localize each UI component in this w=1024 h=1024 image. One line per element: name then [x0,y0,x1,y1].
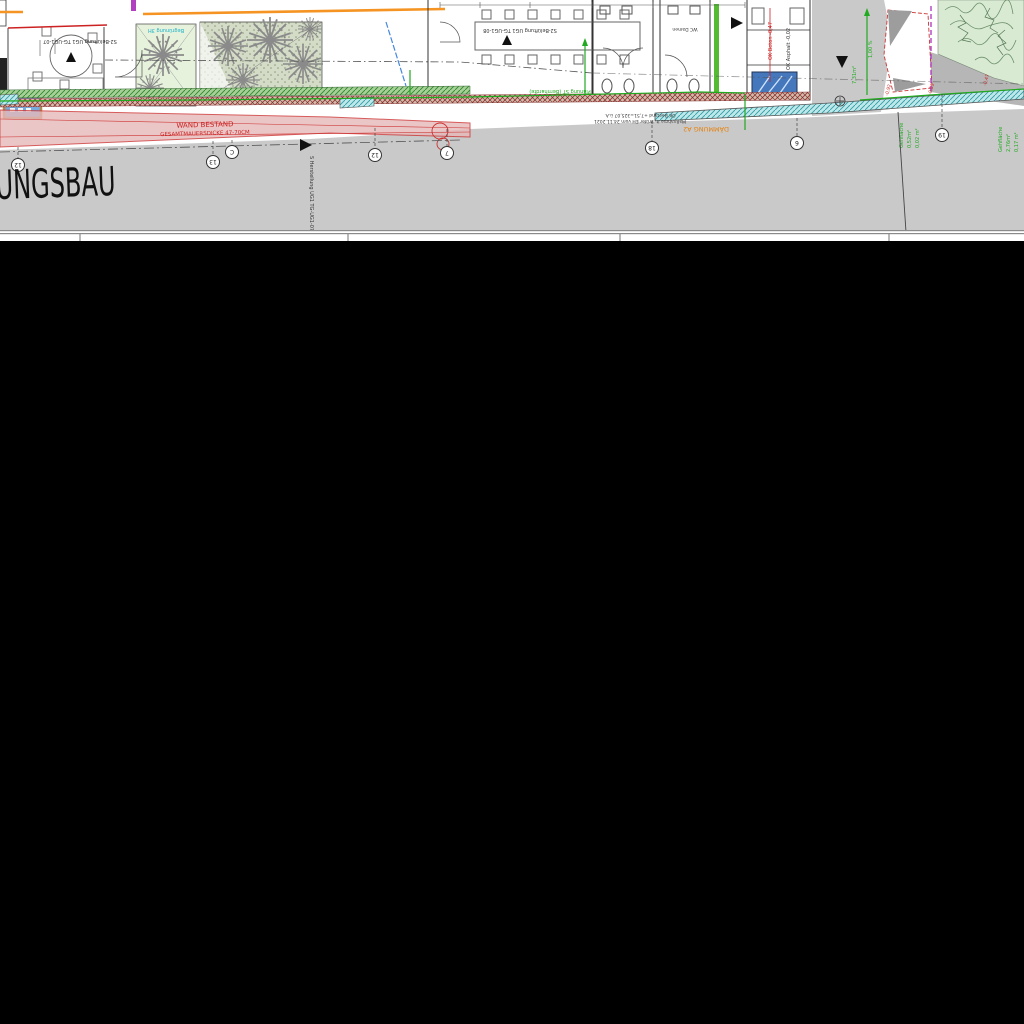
site-plan-drawing: Begrünung 3H S2-Belüftung UG1 TG-UG1-07 [0,0,1024,1024]
walk1-b: 0,02 m² [915,128,921,148]
wc-room-label: WC Damen [672,26,697,32]
magenta-marker [131,0,136,11]
walk2-a: 2,76m² [1006,134,1012,152]
slope-label: 1,00 % [868,40,874,58]
tree-icon [208,26,248,66]
boundary-note: Planung ST (Bernhardte) [529,88,591,94]
insulation-note: DÄMMUNG A2 [683,125,729,134]
walk2-b: 0,17 m² [1014,132,1020,152]
grid-bubble-label: 19 [938,131,946,138]
unrendered-black-area [0,241,1024,1024]
grid-bubble-label: 18 [648,144,656,151]
left-room-label: S2-Belüftung UG1 TG-UG1-07 [43,38,117,44]
wall-pier [0,58,7,95]
wall-note-line1: WAND BESTAND [176,120,233,129]
neighbor-building-footprint [884,10,932,92]
screenshot-root: Begrünung 3H S2-Belüftung UG1 TG-UG1-07 [0,0,1024,1024]
shaft-label: S Herstellung UG1 TG-UG1-07 [308,156,314,231]
grid-bubble-label: 13 [209,158,217,165]
building-big-label: UNGSBAU [0,159,116,209]
grid-bubble-label: C [230,148,234,155]
grid-bubble-label: 12 [371,151,379,158]
teal-channel [0,94,18,105]
walk2-name: Gehfläche [998,127,1004,152]
tree-icon [142,34,184,76]
garden-note: Begrünung 3H [148,27,184,33]
walk1-a: 0,52m² [907,130,913,148]
mid-room-label: S2-Belüftung UG1 TG-UG1-08 [483,27,557,33]
grid-bubble-label: 6 [795,139,799,146]
ok-beton-note: OK Beton -0,47 [768,22,774,60]
bestand-note-line1: OK Bestand +7,51=325,07 ü.A. [604,112,675,118]
green-insulation-strip [714,4,719,97]
grid-bubble-label: 7 [445,149,449,156]
area-label: 7,31m² [852,66,858,84]
bestand-note-line2: Maßnahme lt. Prüfer EH vom 24.11.2021 [594,118,686,124]
tree-icon [298,17,322,41]
title-block-strip [0,230,1024,241]
ok-asphalt-note: OK Asphalt -0,02 [786,28,792,70]
tree-icon [283,44,323,84]
